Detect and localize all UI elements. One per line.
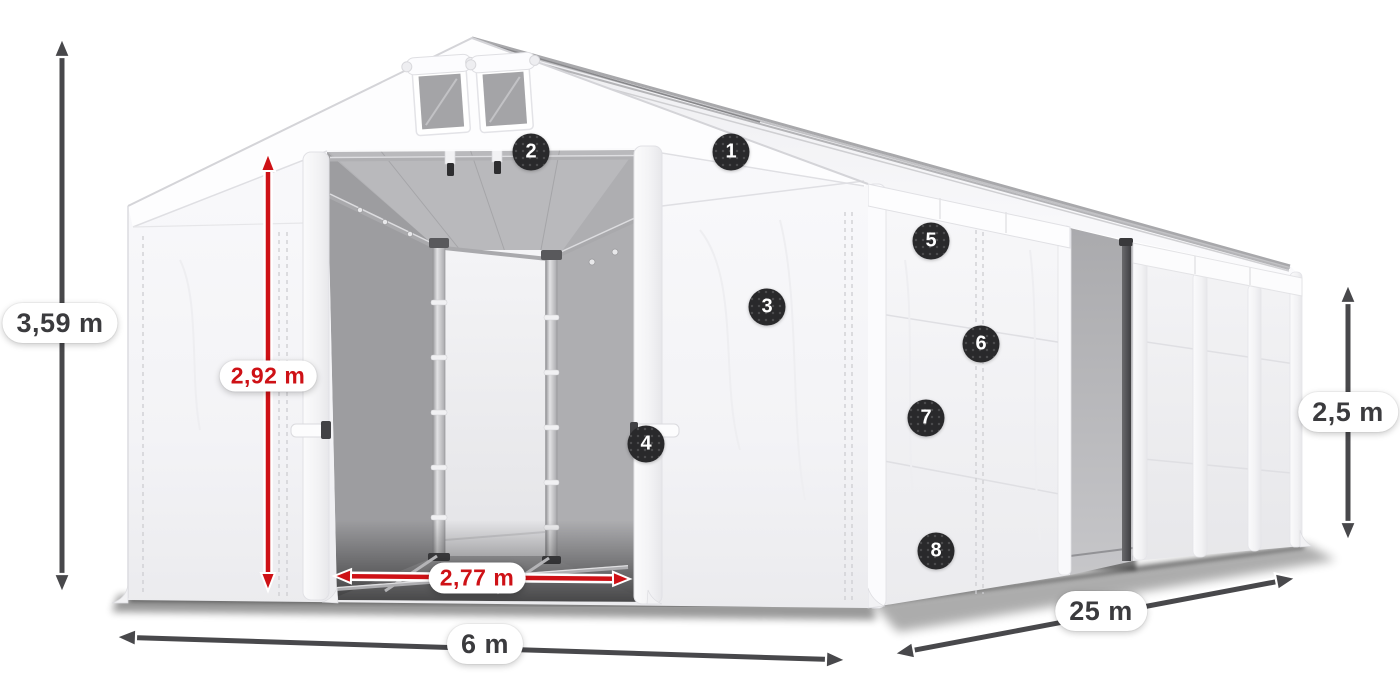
feature-marker-4[interactable]: 4 (628, 426, 665, 463)
inner-frame-pole (546, 256, 557, 562)
corner-pole-cover (866, 184, 886, 608)
feature-marker-8[interactable]: 8 (918, 533, 955, 570)
tarp-clamp-icon (494, 161, 501, 174)
feature-marker-5[interactable]: 5 (913, 223, 950, 260)
feature-marker-1[interactable]: 1 (713, 134, 750, 171)
feature-marker-6[interactable]: 6 (963, 326, 1000, 363)
left-door-handle (291, 421, 331, 439)
feature-marker-3[interactable]: 3 (749, 289, 786, 326)
side-wall-back-section (1070, 228, 1312, 575)
feature-marker-2[interactable]: 2 (513, 134, 550, 171)
side-door-pole (1122, 241, 1131, 561)
dimension-label-door-height: 2,92 m (220, 361, 317, 392)
tarp-clamp-icon (447, 163, 454, 176)
dimension-label-side-wall-height: 2,5 m (1298, 392, 1398, 432)
tent-product-illustration (0, 0, 1400, 700)
door-opening-interior (325, 146, 653, 604)
dimension-label-total-height: 3,59 m (2, 303, 117, 343)
inner-frame-pole (433, 245, 445, 559)
product-diagram-stage: 3,59 m 2,92 m 2,77 m 6 m 25 m 2,5 m 1 2 … (0, 0, 1400, 700)
door-right-jamb (634, 146, 662, 604)
dimension-label-width: 6 m (447, 624, 523, 664)
interior-passage-opening (445, 250, 545, 556)
dimension-label-door-width: 2,77 m (429, 563, 526, 594)
feature-marker-7[interactable]: 7 (908, 400, 945, 437)
side-wall-front-section (866, 184, 1071, 608)
dimension-label-length: 25 m (1055, 591, 1147, 631)
